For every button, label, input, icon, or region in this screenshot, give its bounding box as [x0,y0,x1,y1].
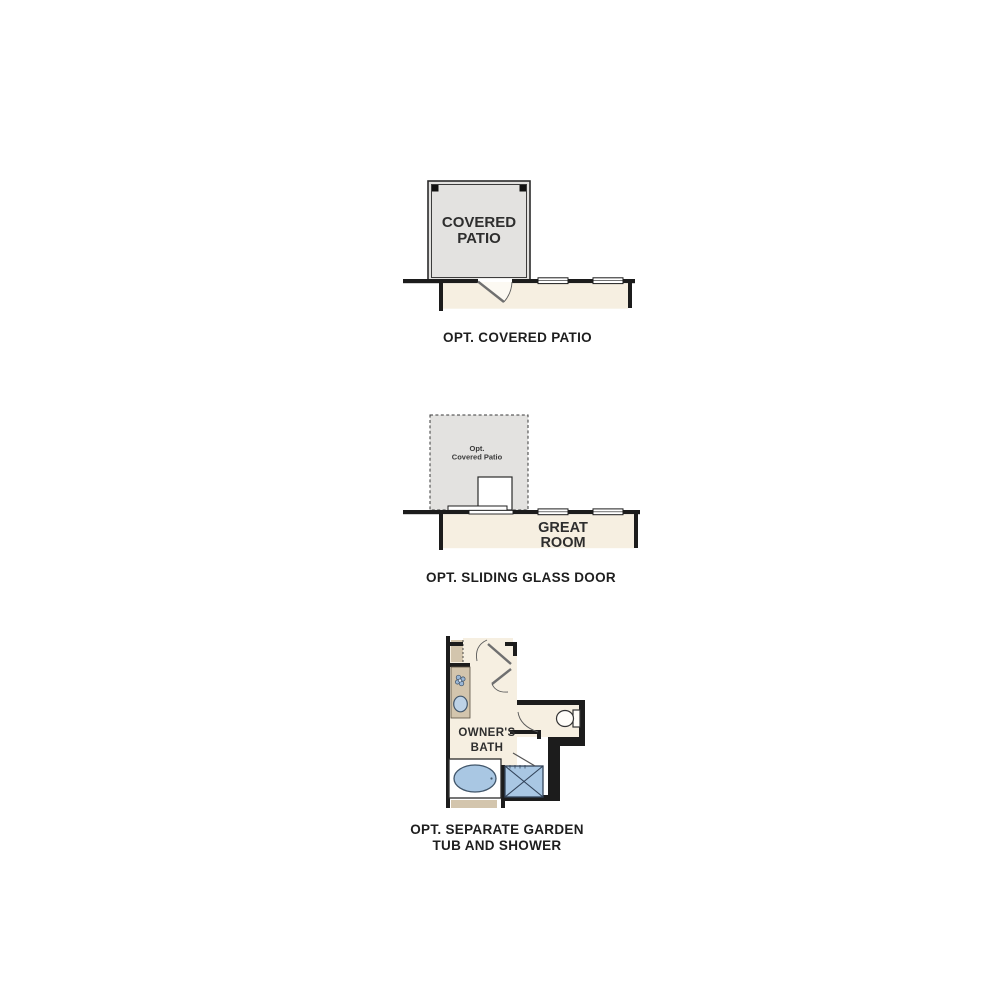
toilet-icon [557,710,581,727]
interior-floor [443,283,628,309]
great-room-label-line1: GREAT [538,520,588,536]
covered-patio-plan: COVERED PATIO [400,178,645,313]
great-room-label-line2: ROOM [540,535,585,551]
wall-wc-bottom [548,737,585,746]
figure-sliding-glass-door: Opt. Covered Patio [400,410,645,595]
window-symbol [593,278,623,284]
vanity-counter [451,667,470,718]
caption-covered-patio: OPT. COVERED PATIO [400,330,635,346]
figure-covered-patio: COVERED PATIO [400,178,645,358]
patio-small-label-line2: Covered Patio [452,453,503,462]
tub-drain [490,777,492,779]
toilet-bowl [557,711,574,727]
wall-wc-stub [537,730,541,739]
bathtub-icon [449,759,501,798]
wall-top-right-stub [513,642,517,656]
interior-wall-right [628,283,632,308]
caption-sliding-glass-door: OPT. SLIDING GLASS DOOR [402,570,640,586]
interior-wall-left [439,514,443,550]
covered-patio-room: COVERED PATIO [428,181,530,281]
sliding-glass-door-plan: Opt. Covered Patio [400,410,645,555]
patio-post-left-icon [432,185,439,192]
wall-wc-top [517,700,583,705]
sink-icon [454,696,468,712]
patio-post-right-icon [520,185,527,192]
door-landing [478,477,512,510]
patio-room-label-line1: COVERED [442,214,516,231]
caption-garden-tub-shower: OPT. SEPARATE GARDEN TUB AND SHOWER [404,822,590,853]
interior-wall-right [634,514,638,548]
optional-patio-area: Opt. Covered Patio [430,415,528,510]
plant-icon [455,675,465,686]
caption-garden-tub-shower-line1: OPT. SEPARATE GARDEN [404,822,590,838]
wall-vanity-top [446,663,470,667]
house-wall [403,278,635,311]
window-symbol [593,509,623,515]
owners-bath-label-line2: BATH [471,742,504,754]
floorplan-options-page: COVERED PATIO [0,0,1000,1000]
window-symbol [538,278,568,284]
house-wall: GREAT ROOM [403,506,640,551]
slider-panel-outer [448,506,507,510]
wall-bottom-tan-strip [451,800,497,808]
tub-basin [454,765,496,792]
wall-right-column [548,746,560,801]
caption-garden-tub-shower-line2: TUB AND SHOWER [404,838,590,854]
figure-garden-tub-shower: OWNER'S BATH OPT. SEPARATE GARDEN TUB AN… [404,636,604,861]
interior-wall-left [439,283,443,311]
owners-bath-plan: OWNER'S BATH [430,636,600,816]
slider-panel-inner [469,510,513,514]
patio-room-label-line2: PATIO [457,230,501,247]
plant-dot [458,679,461,682]
owners-bath-label-line1: OWNER'S [458,727,515,739]
window-symbol [538,509,568,515]
wall-top-left [446,642,463,646]
